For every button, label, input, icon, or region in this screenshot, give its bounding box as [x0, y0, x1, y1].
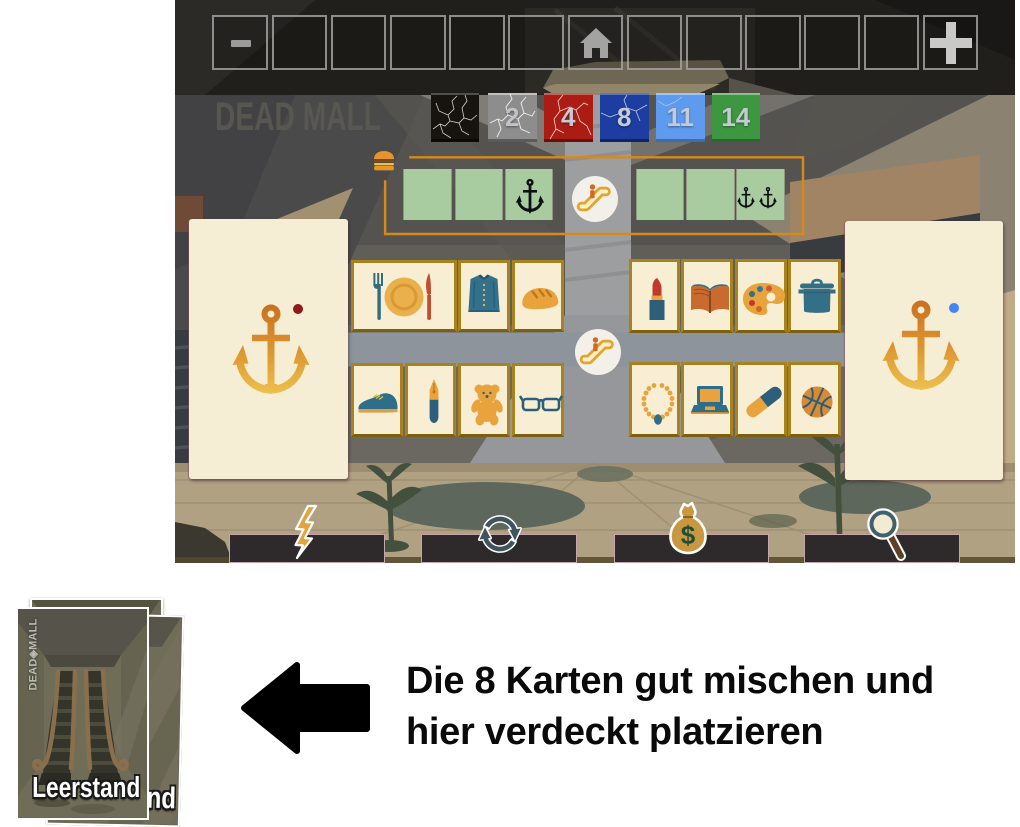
svg-text:DEAD MALL: DEAD MALL: [215, 95, 381, 139]
svg-text:$: $: [681, 520, 696, 550]
